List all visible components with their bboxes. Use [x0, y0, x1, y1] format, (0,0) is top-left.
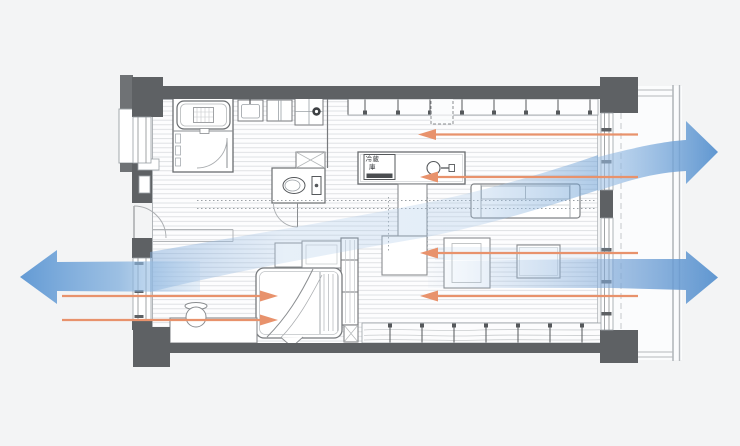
west-wall-pier-3 [132, 320, 152, 330]
east-windows [601, 113, 613, 330]
east-wall-pier [600, 190, 613, 218]
balcony [613, 85, 682, 361]
bed [256, 268, 342, 347]
wood-partition [341, 238, 358, 342]
stool [185, 303, 207, 328]
column-bottom-left [133, 327, 170, 367]
exterior-left-structures [119, 75, 134, 172]
wall-meter-box [139, 176, 150, 193]
range-hood-dashed-box [431, 98, 453, 124]
cabinet-icon [267, 100, 292, 121]
sink-icon [427, 162, 440, 175]
column-top-left [132, 77, 163, 117]
airflow-band-bottom-right [428, 259, 612, 288]
west-wall-pier-2 [132, 238, 152, 258]
bathroom [173, 98, 233, 172]
floor-plan-diagram: 冷蔵庫 [0, 0, 740, 446]
north-wall [163, 86, 600, 99]
floor-plan-canvas [0, 0, 740, 446]
south-window-band [362, 323, 610, 343]
column-top-right [600, 77, 638, 113]
desk [170, 318, 257, 343]
south-wall [170, 343, 638, 353]
